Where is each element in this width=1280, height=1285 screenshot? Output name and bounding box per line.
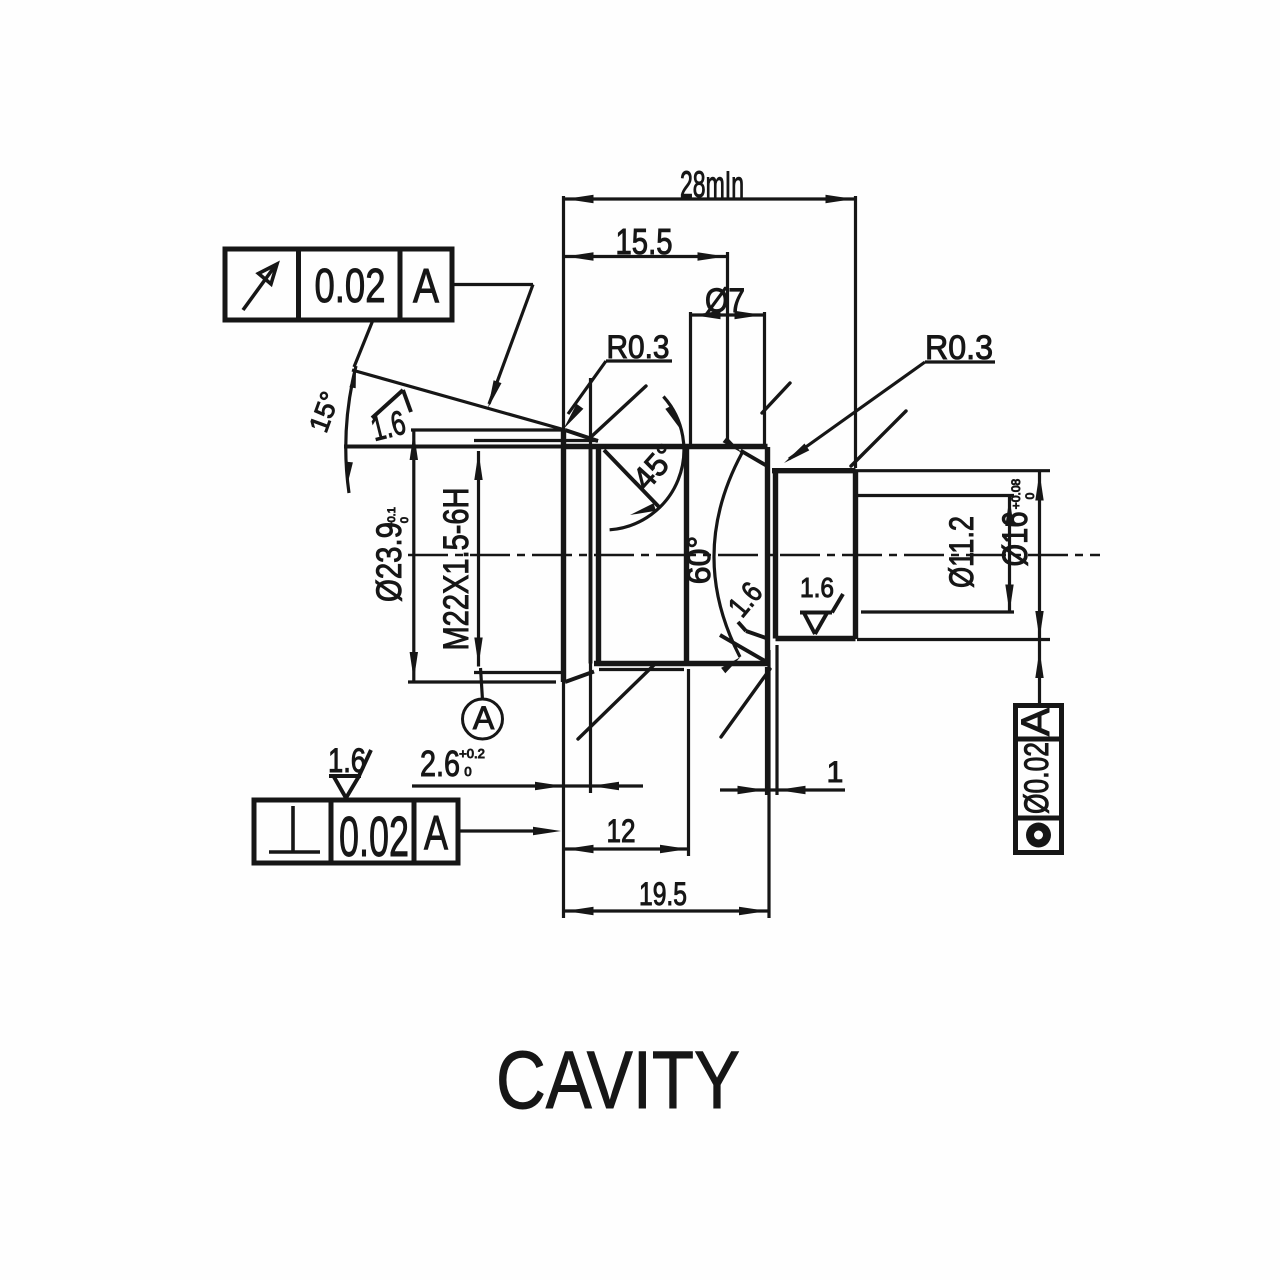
svg-text:1.6: 1.6	[328, 742, 366, 780]
svg-text:0.02: 0.02	[315, 260, 386, 313]
svg-text:28mIn: 28mIn	[680, 164, 744, 205]
svg-text:1.6: 1.6	[722, 576, 769, 623]
svg-text:0.02: 0.02	[339, 805, 409, 869]
svg-text:A: A	[1014, 708, 1058, 736]
svg-text:15.5: 15.5	[616, 221, 673, 262]
svg-text:15°: 15°	[303, 388, 345, 437]
svg-text:A: A	[424, 807, 448, 860]
svg-text:0: 0	[399, 517, 411, 523]
svg-text:+0.1: +0.1	[386, 507, 398, 529]
svg-text:0: 0	[464, 764, 471, 779]
svg-text:M22X1.5-6H: M22X1.5-6H	[437, 488, 476, 651]
svg-text:A: A	[473, 700, 495, 736]
svg-text:Ø23.9: Ø23.9	[370, 522, 409, 602]
svg-text:Ø11.2: Ø11.2	[943, 516, 981, 588]
svg-text:1.6: 1.6	[800, 572, 834, 603]
svg-text:1: 1	[827, 756, 844, 789]
svg-text:A: A	[413, 260, 439, 313]
svg-text:1.6: 1.6	[367, 404, 409, 449]
svg-text:2.6: 2.6	[420, 743, 460, 784]
svg-text:12: 12	[607, 813, 636, 849]
svg-text:60°: 60°	[681, 536, 717, 584]
svg-text:Ø16: Ø16	[996, 512, 1035, 567]
svg-text:0: 0	[1023, 492, 1037, 499]
svg-text:Ø7: Ø7	[705, 282, 745, 320]
svg-text:+0.08: +0.08	[1009, 478, 1023, 509]
svg-text:+0.2: +0.2	[459, 746, 485, 761]
svg-text:19.5: 19.5	[639, 876, 687, 912]
svg-text:CAVITY: CAVITY	[496, 1035, 740, 1126]
svg-text:Ø0.02: Ø0.02	[1018, 742, 1056, 814]
